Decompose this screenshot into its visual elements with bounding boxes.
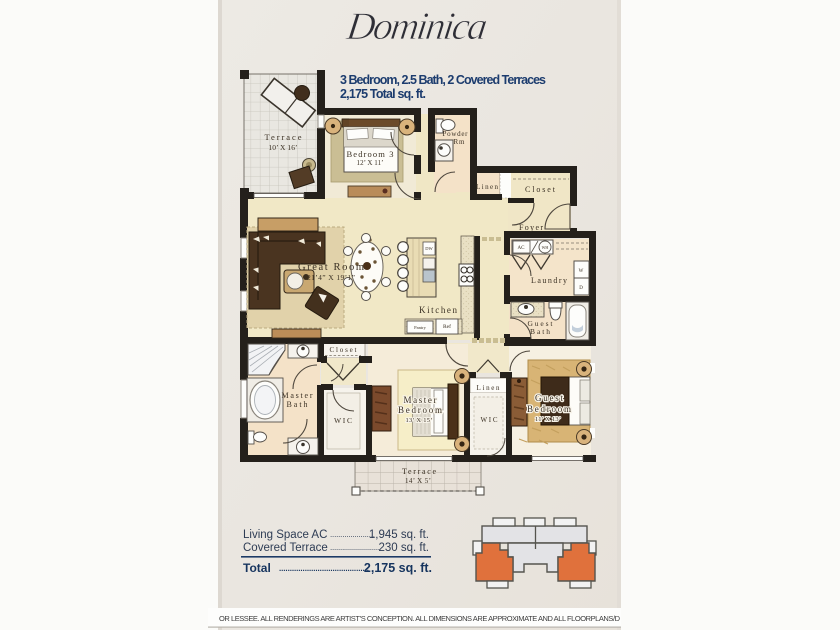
- svg-text:Powder: Powder: [443, 130, 469, 138]
- svg-text:Total: Total: [243, 561, 271, 575]
- svg-text:WIC: WIC: [334, 416, 352, 425]
- svg-text:Pantry: Pantry: [414, 325, 426, 330]
- svg-text:Bedroom 3: Bedroom 3: [347, 149, 394, 159]
- svg-text:Linen: Linen: [477, 384, 501, 392]
- svg-text:Living Space AC: Living Space AC: [243, 529, 327, 541]
- svg-text:10’ X 16’: 10’ X 16’: [269, 143, 298, 152]
- svg-text:Bath: Bath: [287, 400, 308, 409]
- svg-text:D: D: [579, 286, 583, 291]
- svg-text:12’ X 11’: 12’ X 11’: [357, 159, 384, 167]
- svg-text:Closet: Closet: [330, 346, 357, 354]
- svg-text:Master: Master: [404, 395, 437, 405]
- svg-text:14’ X 5’: 14’ X 5’: [405, 477, 431, 485]
- svg-text:..............................: ........................................…: [279, 564, 369, 573]
- svg-text:Ref: Ref: [443, 323, 451, 330]
- svg-text:Foyer: Foyer: [519, 223, 543, 232]
- svg-text:13’ X 15’: 13’ X 15’: [406, 417, 433, 424]
- svg-text:Bath: Bath: [530, 327, 550, 336]
- svg-text:2,175 sq. ft.: 2,175 sq. ft.: [364, 561, 432, 575]
- svg-text:Dominica: Dominica: [343, 5, 490, 48]
- svg-text:1,945 sq. ft.: 1,945 sq. ft.: [369, 529, 429, 541]
- svg-text:WH: WH: [542, 245, 549, 250]
- svg-text:DW: DW: [425, 246, 433, 251]
- svg-text:3 Bedroom, 2.5 Bath, 2 Covered: 3 Bedroom, 2.5 Bath, 2 Covered Terraces: [340, 73, 546, 87]
- svg-text:Great Room: Great Room: [298, 262, 364, 273]
- svg-text:AC: AC: [518, 246, 526, 251]
- svg-text:Kitchen: Kitchen: [419, 305, 458, 315]
- svg-text:WIC: WIC: [481, 416, 498, 424]
- svg-text:11’ X 13’: 11’ X 13’: [535, 416, 561, 423]
- svg-text:21’4” X 19’1”: 21’4” X 19’1”: [307, 273, 355, 282]
- svg-text:W: W: [579, 269, 584, 274]
- svg-text:Covered Terrace: Covered Terrace: [243, 542, 328, 554]
- svg-text:Linen: Linen: [476, 183, 499, 191]
- svg-text:.........................: .........................: [330, 543, 380, 552]
- svg-text:2,175 Total sq. ft.: 2,175 Total sq. ft.: [340, 87, 426, 101]
- svg-text:Rm: Rm: [454, 138, 466, 146]
- svg-text:230 sq. ft.: 230 sq. ft.: [378, 542, 429, 554]
- svg-text:OR LESSEE. ALL RENDERINGS ARE: OR LESSEE. ALL RENDERINGS ARE ARTIST’S C…: [219, 614, 621, 623]
